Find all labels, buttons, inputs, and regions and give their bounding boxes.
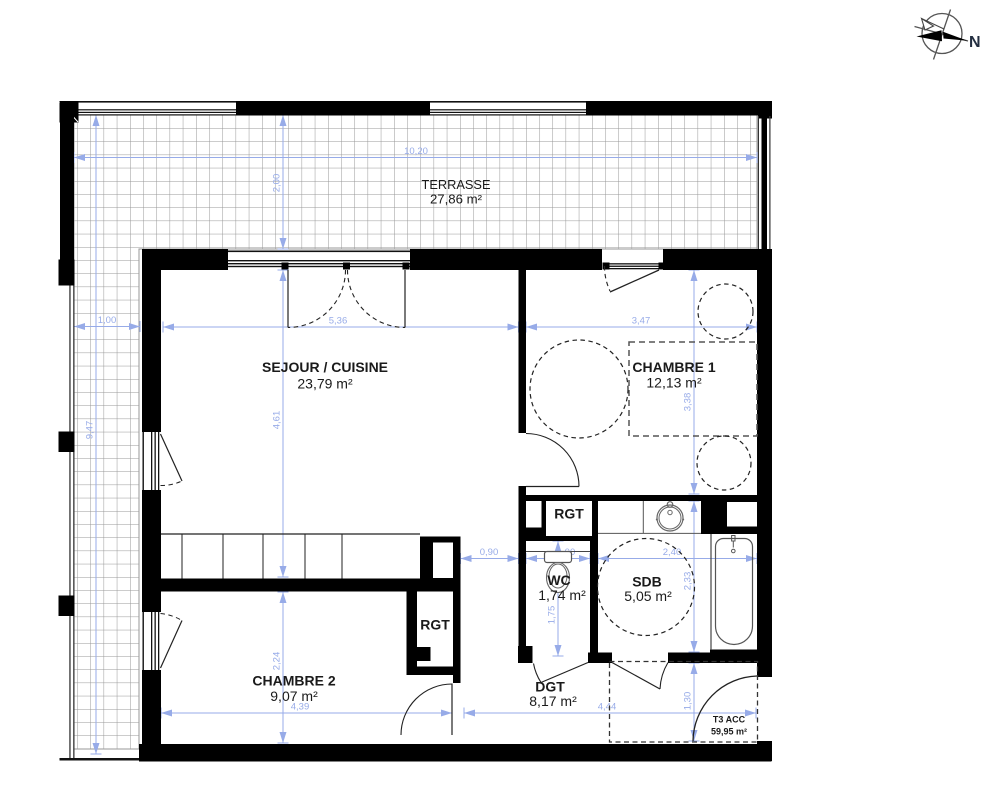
svg-text:5,36: 5,36 bbox=[329, 316, 348, 327]
svg-text:1,74 m²: 1,74 m² bbox=[538, 587, 586, 603]
svg-text:SEJOUR / CUISINE: SEJOUR / CUISINE bbox=[262, 359, 388, 375]
svg-text:3,38: 3,38 bbox=[683, 393, 694, 412]
svg-text:1,00: 1,00 bbox=[98, 315, 117, 326]
svg-text:RGT: RGT bbox=[420, 617, 450, 633]
svg-text:CHAMBRE 2: CHAMBRE 2 bbox=[252, 673, 335, 689]
svg-text:27,86 m²: 27,86 m² bbox=[430, 192, 483, 207]
svg-text:WC: WC bbox=[547, 572, 570, 588]
svg-text:2,00: 2,00 bbox=[272, 174, 283, 193]
svg-text:12,13 m²: 12,13 m² bbox=[646, 375, 702, 391]
svg-text:23,79 m²: 23,79 m² bbox=[297, 376, 353, 392]
svg-text:9,47: 9,47 bbox=[85, 421, 96, 440]
svg-text:10,20: 10,20 bbox=[404, 146, 428, 157]
svg-text:8,17 m²: 8,17 m² bbox=[529, 693, 577, 709]
svg-text:2,24: 2,24 bbox=[272, 652, 283, 671]
svg-text:RGT: RGT bbox=[554, 506, 584, 522]
svg-text:4,44: 4,44 bbox=[598, 702, 617, 713]
svg-text:CHAMBRE 1: CHAMBRE 1 bbox=[632, 359, 715, 375]
svg-text:59,95 m²: 59,95 m² bbox=[711, 727, 747, 737]
svg-text:2,33: 2,33 bbox=[683, 572, 694, 591]
svg-text:0,90: 0,90 bbox=[480, 547, 499, 558]
svg-text:9,07 m²: 9,07 m² bbox=[270, 688, 318, 704]
svg-text:2,40: 2,40 bbox=[663, 547, 682, 558]
svg-text:4,61: 4,61 bbox=[272, 411, 283, 430]
svg-text:TERRASSE: TERRASSE bbox=[422, 177, 491, 192]
svg-text:1,30: 1,30 bbox=[683, 692, 694, 711]
svg-text:1,75: 1,75 bbox=[547, 606, 558, 625]
svg-text:T3 ACC: T3 ACC bbox=[713, 715, 746, 725]
svg-text:5,05 m²: 5,05 m² bbox=[624, 588, 672, 604]
svg-text:N: N bbox=[969, 34, 981, 51]
svg-text:3,47: 3,47 bbox=[632, 316, 651, 327]
